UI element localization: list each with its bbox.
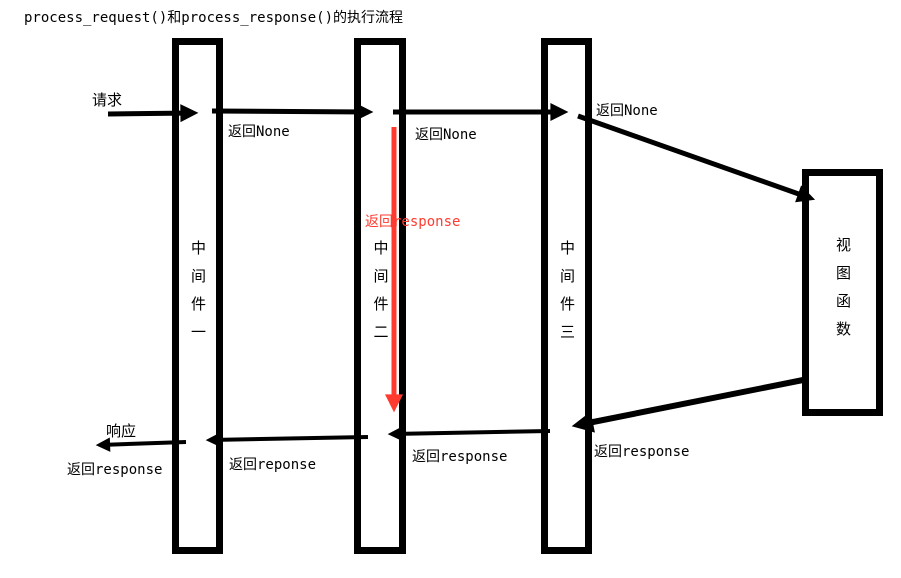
middleware-1-box: 中间件一 — [172, 38, 223, 554]
mw2-to-mw1-arrow — [210, 437, 368, 440]
diagram-title: process_request()和process_response()的执行流… — [24, 7, 403, 27]
request-label: 请求 — [92, 89, 122, 110]
return-none-label-1: 返回None — [228, 121, 290, 141]
return-response-out-label: 返回response — [67, 459, 162, 479]
mw3-to-mw2-arrow — [392, 431, 550, 434]
middleware-3-label: 中间件三 — [559, 240, 574, 352]
middleware-1-label: 中间件一 — [190, 240, 205, 352]
view-to-mw3-arrow — [578, 379, 808, 425]
middleware-2-box: 中间件二 — [354, 38, 406, 554]
view-function-label: 视图函数 — [835, 237, 850, 349]
middleware-3-box: 中间件三 — [541, 38, 592, 554]
arrows-layer — [0, 0, 901, 578]
return-none-label-2: 返回None — [415, 124, 477, 144]
mw1-to-mw2-arrow — [212, 111, 368, 112]
view-function-box: 视图函数 — [802, 169, 883, 416]
red-return-response-label: 返回response — [365, 211, 460, 231]
return-none-label-3: 返回None — [596, 100, 658, 120]
middleware-2-label: 中间件二 — [373, 240, 388, 352]
return-response-mw3-mw2-label: 返回response — [412, 446, 507, 466]
return-reponse-mw2-mw1-label: 返回reponse — [229, 454, 316, 474]
mw3-to-view-arrow — [578, 116, 810, 198]
middleware-flow-diagram: process_request()和process_response()的执行流… — [0, 0, 901, 578]
return-response-view-mw3-label: 返回response — [594, 441, 689, 461]
response-label: 响应 — [106, 420, 136, 441]
